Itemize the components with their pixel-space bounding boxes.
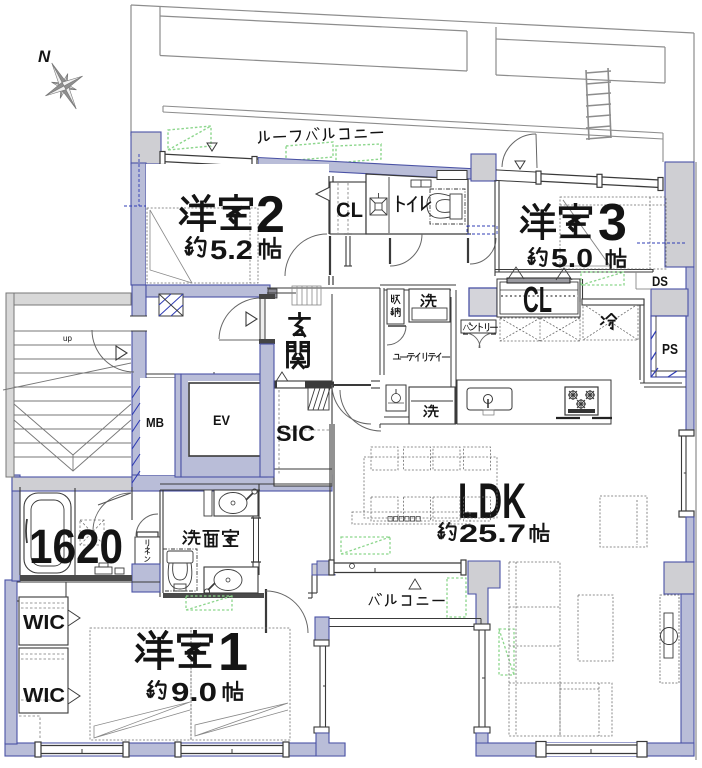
svg-text:CL: CL — [336, 199, 363, 222]
svg-text:WIC: WIC — [23, 612, 65, 634]
svg-text:up: up — [63, 334, 72, 343]
svg-text:EV: EV — [213, 412, 231, 428]
svg-text:1: 1 — [218, 622, 248, 682]
svg-text:9.0: 9.0 — [171, 677, 217, 707]
svg-text:MB: MB — [146, 415, 164, 430]
svg-text:WIC: WIC — [23, 685, 65, 707]
svg-text:5.0: 5.0 — [551, 243, 593, 273]
svg-text:3: 3 — [598, 194, 627, 252]
svg-text:2: 2 — [256, 186, 285, 244]
svg-text:1620: 1620 — [29, 521, 123, 574]
svg-text:N: N — [38, 47, 51, 66]
svg-text:DS: DS — [652, 274, 668, 289]
svg-text:SIC: SIC — [276, 421, 315, 446]
svg-text:PS: PS — [662, 341, 678, 358]
svg-text:5.2: 5.2 — [210, 235, 253, 265]
svg-text:CL: CL — [523, 279, 552, 320]
